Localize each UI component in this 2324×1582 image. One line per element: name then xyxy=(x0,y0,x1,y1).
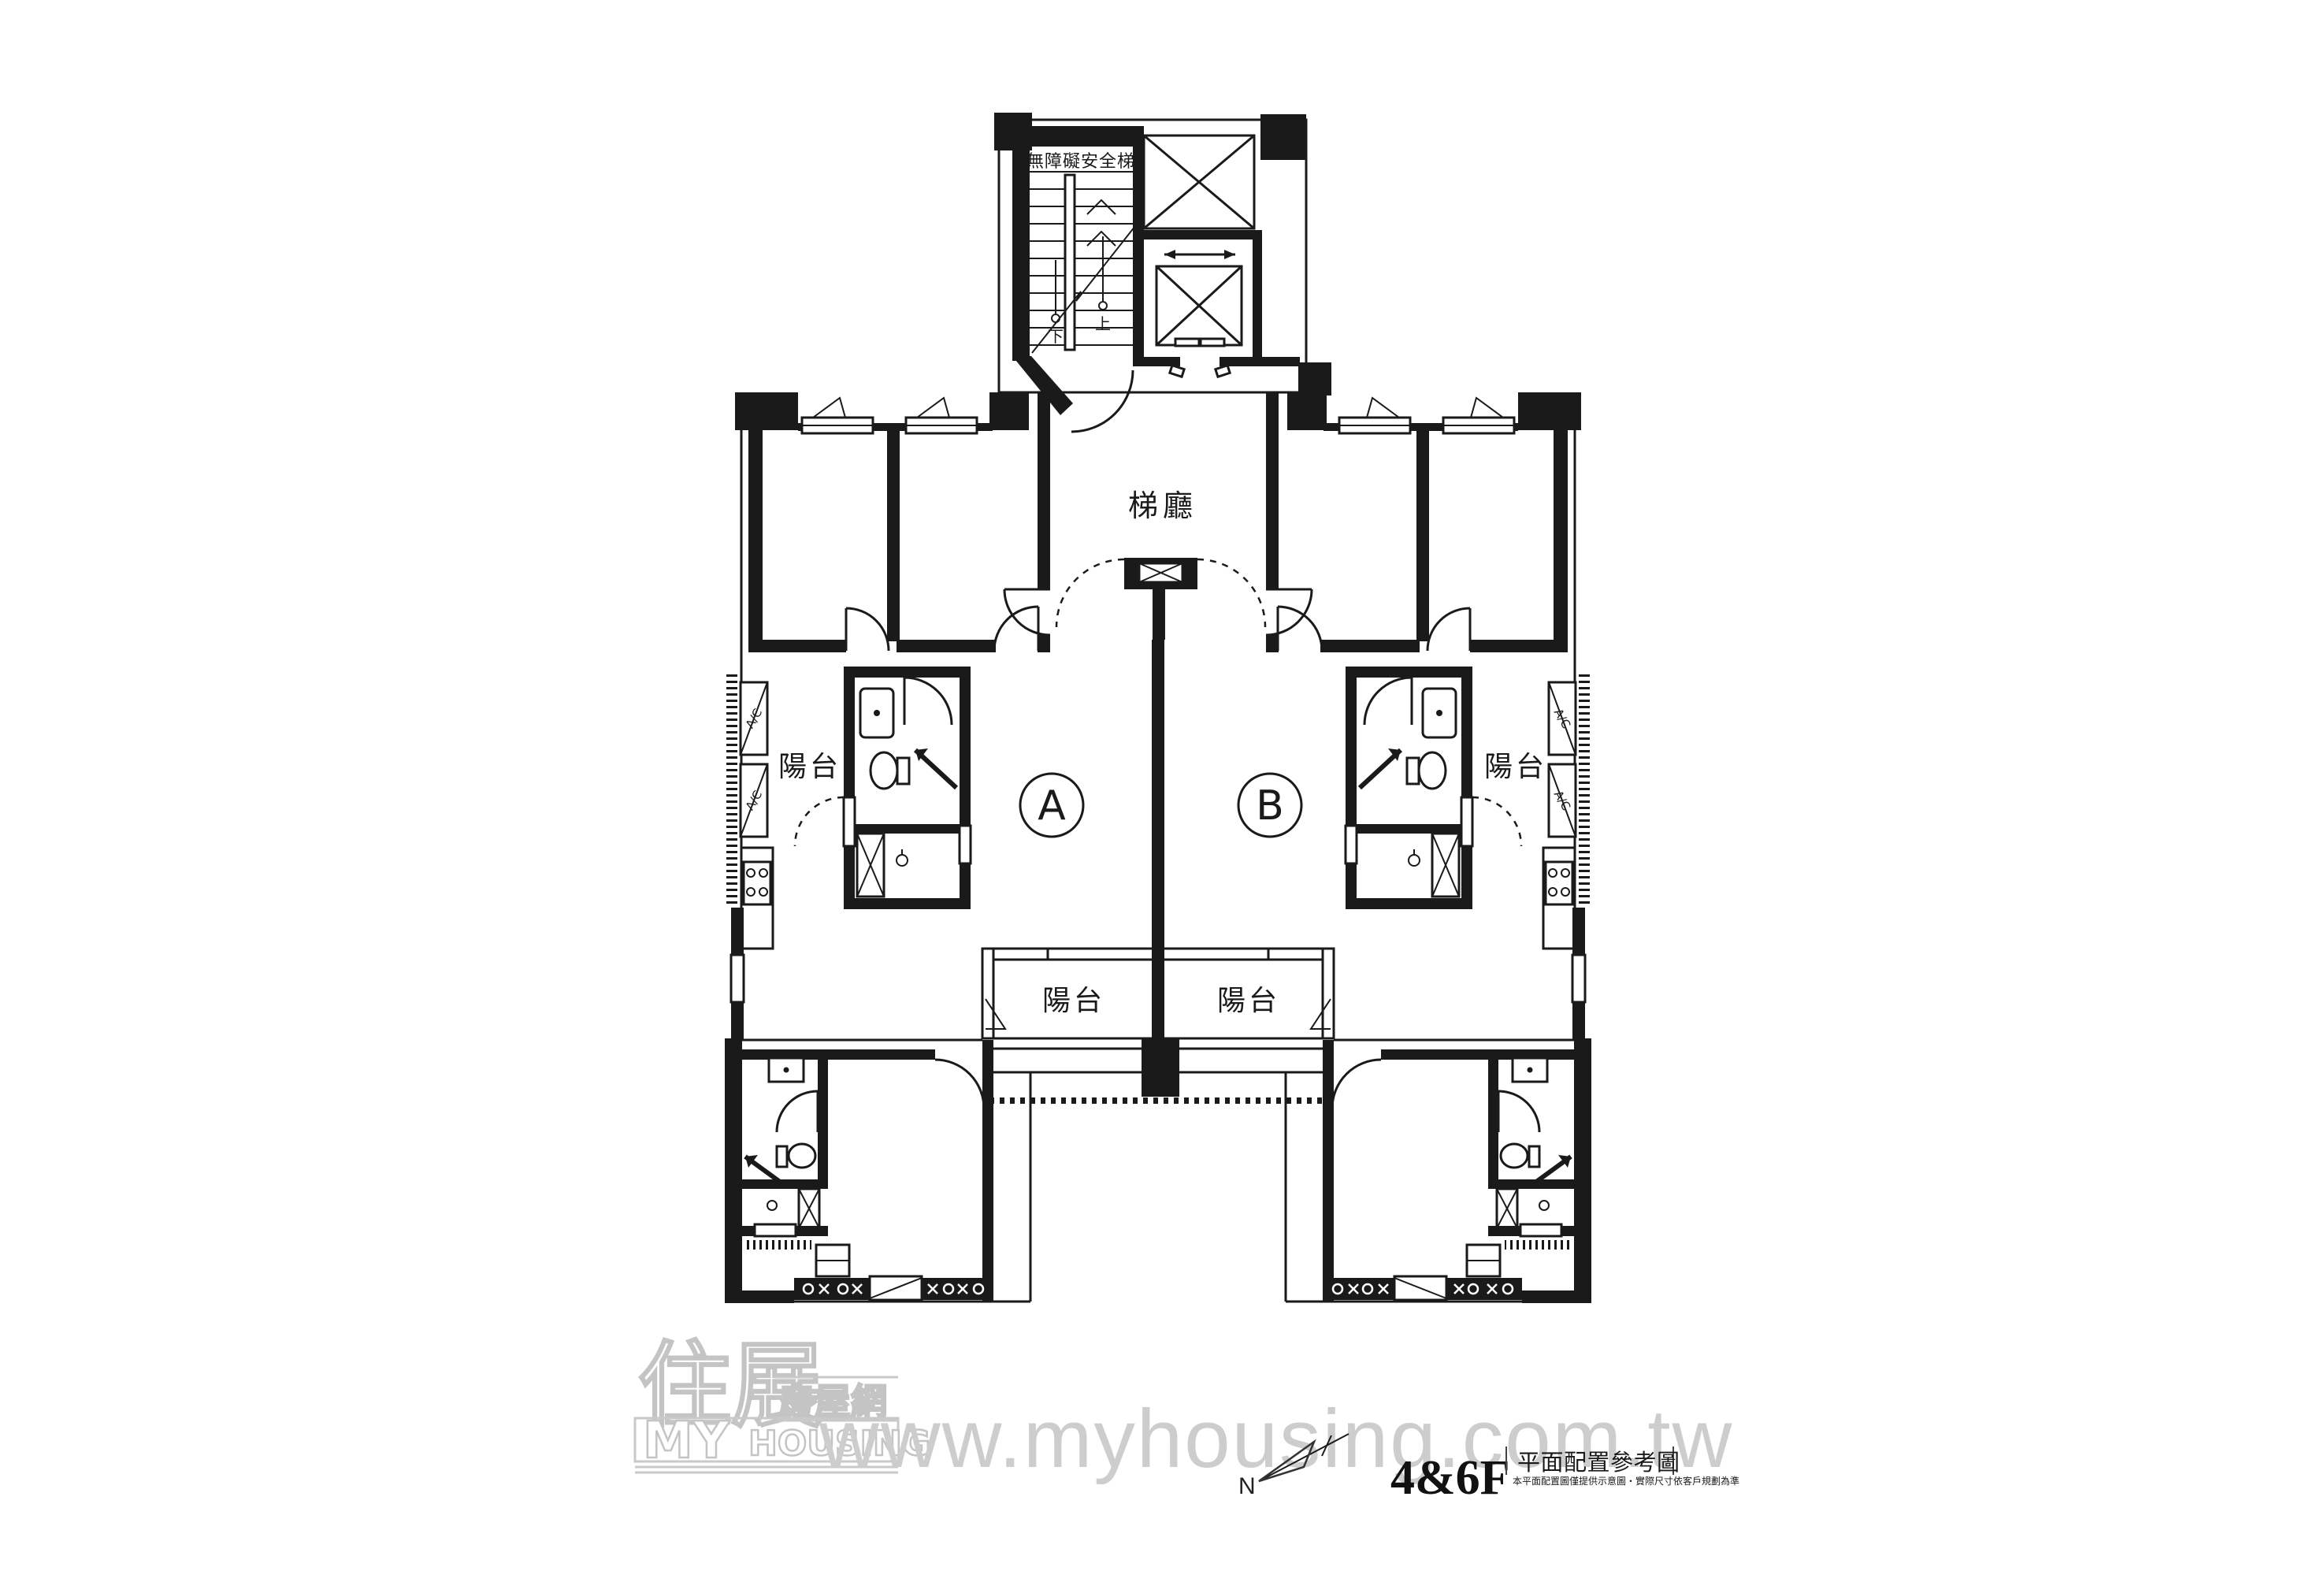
stairs xyxy=(1030,172,1141,353)
party-wall xyxy=(1142,640,1179,1097)
floorplan-page: 無障礙安全梯 上 下 梯廳 xyxy=(0,0,2324,1582)
floor-label: 4&6F xyxy=(1390,1451,1510,1505)
floorplan-drawing: 無障礙安全梯 上 下 梯廳 xyxy=(0,0,2324,1582)
stair-label: 無障礙安全梯 xyxy=(1026,152,1135,172)
balcony-bottom-left-label: 陽台 xyxy=(1042,985,1105,1017)
elevator xyxy=(1133,230,1262,377)
plan-disclaimer: 本平面配置圖僅提供示意圖・實際尺寸依客戶規劃為準 xyxy=(1513,1475,1739,1487)
lobby-label: 梯廳 xyxy=(1128,488,1197,523)
stair-tower: 無障礙安全梯 上 下 xyxy=(994,113,1331,432)
unit-b-label: B xyxy=(1256,782,1284,830)
stair-up-label: 上 xyxy=(1095,314,1111,333)
stair-down-label: 下 xyxy=(1048,327,1064,346)
unit-a-label: A xyxy=(1038,782,1066,830)
balcony-bottom-right-label: 陽台 xyxy=(1217,985,1280,1017)
unit-a-wing xyxy=(725,392,1050,1303)
unit-b-wing xyxy=(1266,392,1591,1303)
vent-shaft xyxy=(1144,136,1254,228)
plan-title: 平面配置參考圖 xyxy=(1517,1449,1680,1476)
logo-en-my: MY xyxy=(643,1412,730,1470)
balcony-right-label: 陽台 xyxy=(1484,751,1547,783)
lobby: 梯廳 xyxy=(1056,488,1265,640)
north-label: N xyxy=(1238,1473,1256,1499)
balcony-left-label: 陽台 xyxy=(778,751,841,783)
